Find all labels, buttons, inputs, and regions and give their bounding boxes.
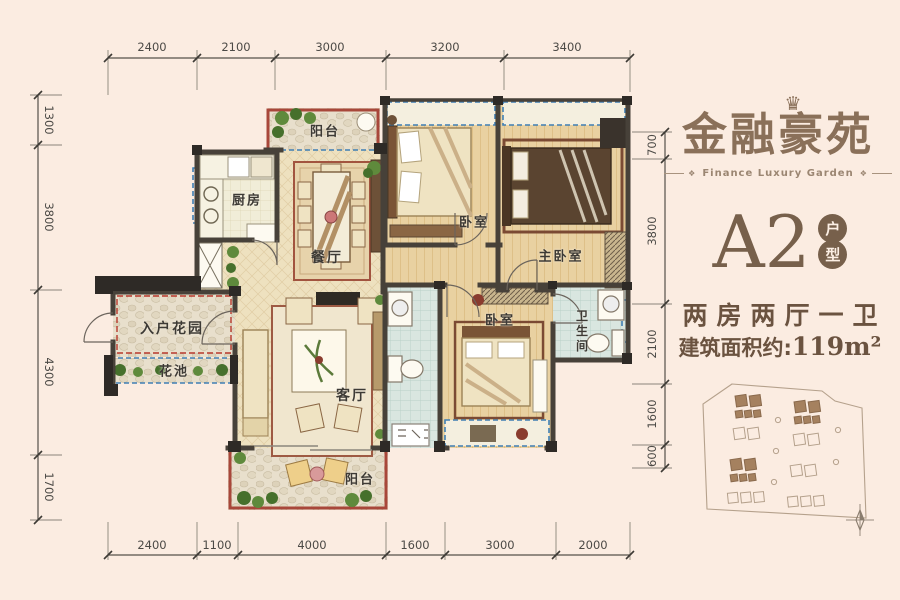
floorplan-brochure: 阳台 厨房 餐厅 卧室 主卧室 入户花园 花池 客厅 卧室 卫生间 阳台 240… [0,0,900,600]
brand-logo: 金融豪苑 [662,112,894,157]
bay-cushion [470,425,496,442]
room-label-living: 客厅 [336,385,368,405]
dim-right-4: 600 [645,445,659,467]
dim-bottom-0: 2400 [137,538,166,552]
room-label-master-bedroom: 主卧室 [538,246,583,265]
badge-hu: 户 [818,214,847,243]
dim-right-3: 1600 [645,399,659,428]
room-label-balcony-top: 阳台 [310,121,340,140]
sofa [243,330,268,418]
building-highlighted [733,393,763,421]
floorplan-drawing [0,0,680,600]
dim-left-1: 3800 [42,202,56,231]
ornament-icon: ❖ [860,169,868,178]
badge-xing: 型 [818,240,847,269]
ornament-icon: ❖ [688,169,696,178]
dim-bottom-5: 2000 [578,538,607,552]
dim-top-4: 3400 [552,40,581,54]
unit-code-row: A2 户 型 [660,208,900,276]
compass-icon [842,502,878,538]
tagline-left-line [664,173,684,174]
dim-right-2: 2100 [645,329,659,358]
area-value: 119m² [792,332,882,361]
tagline-text: Finance Luxury Garden [702,168,853,179]
room-label-entry-garden: 入户花园 [140,318,204,338]
unit-area-desc: 建筑面积约:119m² [660,332,900,362]
room-label-bathroom: 卫生间 [574,310,591,355]
area-label: 建筑面积约: [679,336,792,360]
dim-top-1: 2100 [221,40,250,54]
dim-bottom-3: 1600 [400,538,429,552]
unit-layout-desc: 两房两厅一卫 [660,296,900,332]
unit-type-badges: 户 型 [818,214,847,269]
dim-left-2: 4300 [42,357,56,386]
tv-console [316,292,360,305]
dim-left-3: 1700 [42,472,56,501]
building-highlighted [792,398,822,426]
room-label-balcony-bottom: 阳台 [345,469,375,488]
dim-top-3: 3200 [430,40,459,54]
dim-top-0: 2400 [137,40,166,54]
building-highlighted [728,456,758,484]
dim-top-2: 3000 [315,40,344,54]
room-label-bedroom-bottom: 卧室 [485,310,515,329]
dim-right-1: 3800 [645,216,659,245]
dim-bottom-1: 1100 [202,538,231,552]
dim-right-0: 700 [645,134,659,156]
dim-bottom-4: 3000 [485,538,514,552]
room-label-kitchen: 厨房 [232,190,262,209]
dim-bottom-2: 4000 [297,538,326,552]
tagline-right-line [872,173,892,174]
room-label-bedroom-top: 卧室 [459,212,489,231]
shaft [198,243,222,288]
site-buildings [727,393,840,510]
unit-code: A2 [713,208,811,276]
brand-tagline: ❖ Finance Luxury Garden ❖ [664,168,892,179]
room-label-flower-bed: 花池 [159,361,189,380]
dim-left-0: 1300 [42,105,56,134]
room-label-dining: 餐厅 [311,247,343,267]
